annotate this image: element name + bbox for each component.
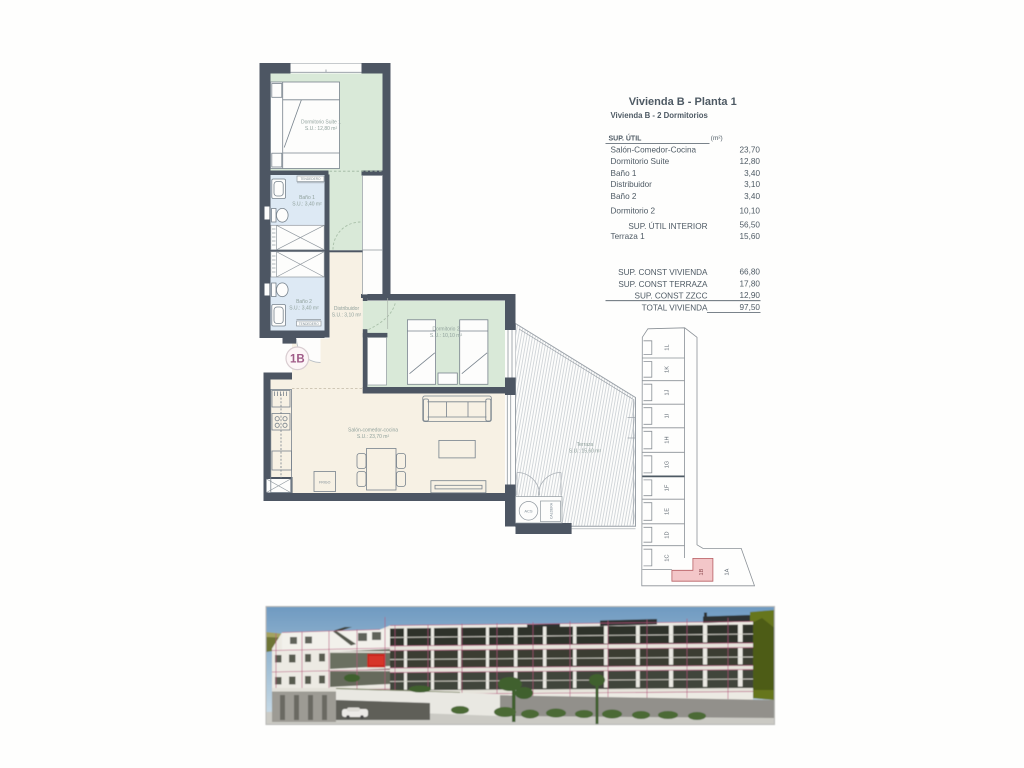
svg-text:1E: 1E	[665, 508, 671, 515]
svg-text:1B: 1B	[290, 353, 305, 365]
svg-text:1J: 1J	[665, 389, 671, 395]
svg-text:S.U.: 10,10 m²: S.U.: 10,10 m²	[430, 333, 463, 339]
svg-text:SUP. CONST VIVIENDA: SUP. CONST VIVIENDA	[618, 268, 708, 277]
svg-text:3,40: 3,40	[744, 169, 760, 178]
svg-text:15,60: 15,60	[740, 232, 761, 241]
svg-text:S.U.: 3,40 m²: S.U.: 3,40 m²	[292, 201, 322, 207]
svg-text:(m²): (m²)	[711, 135, 723, 142]
svg-text:TENDEDERO: TENDEDERO	[299, 322, 320, 326]
svg-text:TENDEDERO: TENDEDERO	[300, 177, 321, 181]
svg-text:Dormitorio Suite: Dormitorio Suite	[611, 157, 670, 166]
svg-text:12,90: 12,90	[740, 291, 761, 300]
svg-text:3,10: 3,10	[744, 180, 760, 189]
svg-text:Dormitorio 2: Dormitorio 2	[432, 327, 459, 333]
svg-text:Vivienda B - 2 Dormitorios: Vivienda B - 2 Dormitorios	[611, 111, 709, 120]
svg-text:1K: 1K	[665, 366, 671, 373]
svg-text:Salón-Comedor-Cocina: Salón-Comedor-Cocina	[611, 146, 697, 155]
svg-text:SUP. ÚTIL: SUP. ÚTIL	[609, 134, 643, 143]
svg-text:1I: 1I	[665, 413, 671, 418]
svg-text:S.U.: 23,70 m²: S.U.: 23,70 m²	[357, 434, 390, 440]
svg-text:Distribuidor: Distribuidor	[611, 180, 653, 189]
svg-text:1H: 1H	[665, 436, 671, 443]
svg-text:S.U.: 15,60 m²: S.U.: 15,60 m²	[569, 449, 602, 455]
svg-text:S.U.: 3,10 m²: S.U.: 3,10 m²	[332, 312, 362, 318]
svg-text:Terraza: Terraza	[577, 442, 594, 448]
svg-text:Baño 1: Baño 1	[299, 195, 315, 201]
svg-text:1C: 1C	[665, 554, 671, 561]
svg-text:SUP. CONST ZZCC: SUP. CONST ZZCC	[635, 292, 708, 301]
svg-text:TOTAL VIVIENDA: TOTAL VIVIENDA	[642, 304, 708, 313]
svg-text:S.U.: 12,80 m²: S.U.: 12,80 m²	[305, 126, 338, 132]
svg-text:1B: 1B	[699, 568, 705, 575]
svg-text:SUP. ÚTIL INTERIOR: SUP. ÚTIL INTERIOR	[628, 221, 707, 231]
svg-text:Baño 2: Baño 2	[611, 192, 637, 201]
svg-text:12,80: 12,80	[740, 157, 761, 166]
svg-text:Salón-comedor-cocina: Salón-comedor-cocina	[348, 428, 398, 434]
svg-text:56,50: 56,50	[740, 221, 761, 230]
svg-text:Dormitorio Suite 1: Dormitorio Suite 1	[301, 120, 341, 126]
svg-text:1L: 1L	[665, 344, 671, 350]
svg-text:1F: 1F	[665, 484, 671, 491]
svg-text:1D: 1D	[665, 531, 671, 538]
svg-text:Dormitorio 2: Dormitorio 2	[611, 207, 656, 216]
svg-text:Distribuidor: Distribuidor	[334, 306, 360, 312]
svg-text:10,10: 10,10	[740, 207, 761, 216]
svg-text:1G: 1G	[665, 461, 671, 468]
svg-text:SUP. CONST TERRAZA: SUP. CONST TERRAZA	[618, 280, 708, 289]
svg-text:Vivienda B - Planta 1: Vivienda B - Planta 1	[629, 96, 737, 108]
svg-text:1A: 1A	[725, 568, 731, 575]
svg-text:CALDERA: CALDERA	[550, 502, 554, 519]
svg-text:Terraza 1: Terraza 1	[611, 232, 646, 241]
svg-text:97,50: 97,50	[740, 303, 761, 312]
svg-text:FRIGO: FRIGO	[319, 481, 331, 485]
svg-text:S.U.: 3,40 m²: S.U.: 3,40 m²	[289, 305, 319, 311]
svg-text:17,80: 17,80	[740, 280, 761, 289]
svg-text:3,40: 3,40	[744, 192, 760, 201]
svg-text:ACS: ACS	[524, 509, 533, 514]
svg-text:Baño 2: Baño 2	[296, 299, 312, 305]
svg-text:66,80: 66,80	[740, 268, 761, 277]
svg-text:23,70: 23,70	[740, 146, 761, 155]
svg-text:Baño 1: Baño 1	[611, 169, 637, 178]
